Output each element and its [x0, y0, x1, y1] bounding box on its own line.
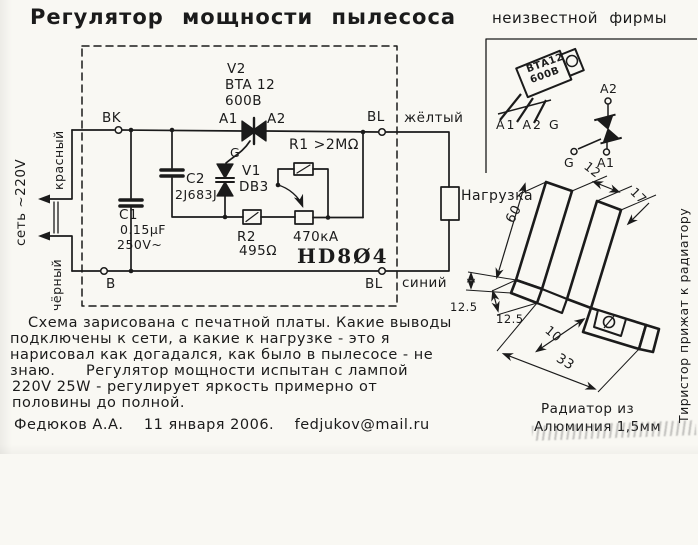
signature-line: Федюков А.А. 11 января 2006. fedjukov@ma… — [14, 418, 430, 434]
heatsink-drawing — [511, 182, 659, 352]
wiper-arrow — [278, 185, 303, 206]
terminal-bl-top — [379, 129, 386, 136]
heatsink-caption-1: Радиатор из — [541, 402, 634, 417]
dim-12-5-a: 12.5 — [450, 301, 478, 313]
note-line-1: Схема зарисована с печатной платы. Какие… — [28, 316, 452, 332]
package-pins-label: A1 A2 G — [496, 118, 561, 132]
dim-12-5-b: 12.5 — [496, 313, 524, 325]
terminal-bk-label: BK — [102, 111, 121, 126]
v1-designator: V1 — [242, 164, 261, 179]
mount-note-line1: Тиристор прижат к радиатору — [677, 93, 691, 423]
c1-value: 0.15μF — [120, 223, 166, 237]
scanned-schematic-page: { "title": "Регулятор мощности пылесоса"… — [0, 0, 698, 454]
terminal-bl-top-label: BL — [367, 110, 385, 125]
r1-label: R1 >2МΩ — [289, 138, 359, 153]
wire-red-label: красный — [52, 130, 66, 190]
v2-voltage: 600В — [225, 94, 262, 109]
pinout-g-label: G — [564, 156, 574, 170]
note-line-3: нарисовал как догадался, как было в пыле… — [10, 348, 433, 364]
board-marking: HD8Ø4 — [297, 246, 389, 268]
triac-v2-symbol — [242, 118, 266, 144]
terminal-bl-bottom-label: BL — [365, 277, 383, 292]
page-title: Регулятор мощности пылесоса — [30, 6, 456, 29]
potentiometer-symbol — [295, 211, 313, 224]
v2-type: BTA 12 — [225, 78, 275, 93]
diac-v1-symbol — [216, 164, 234, 196]
c2-value: 2J683J — [175, 188, 217, 202]
note-line-4: знаю. Регулятор мощности испытан с лампо… — [10, 364, 408, 380]
terminal-bl-bottom — [379, 268, 386, 275]
c2-designator: C2 — [186, 172, 205, 187]
note-line-6: половины до полной. — [12, 396, 185, 412]
r2-value: 495Ω — [239, 244, 277, 259]
terminal-b-label: B — [106, 277, 116, 292]
resistor-r1-symbol — [294, 163, 313, 175]
wire-black-label: чёрный — [50, 259, 64, 311]
c1-designator: C1 — [119, 208, 138, 223]
load-label: Нагрузка — [461, 189, 533, 204]
c1-voltage: 250V~ — [117, 238, 162, 252]
wire-yellow-label: жёлтый — [404, 111, 463, 126]
resistor-r2-symbol — [243, 210, 261, 224]
triac-g-label: G — [230, 146, 240, 160]
pinout-a2-label: A2 — [600, 82, 618, 96]
note-line-2: подключены к сети, а какие к нагрузке - … — [10, 332, 390, 348]
terminal-b — [101, 268, 108, 275]
note-line-5: 220V 25W - регулирует яркость примерно о… — [12, 380, 377, 396]
v1-type: DB3 — [239, 180, 269, 195]
wire-blue-label: синий — [402, 276, 447, 291]
load-resistor — [441, 187, 459, 220]
pot-value: 470кА — [293, 230, 339, 245]
triac-a1-label: A1 — [219, 112, 238, 127]
v2-designator: V2 — [227, 62, 246, 77]
pinout-symbol — [571, 98, 622, 155]
brand-note: неизвестной фирмы — [492, 10, 667, 26]
terminal-bk — [115, 127, 122, 134]
mains-label: сеть ~220V — [14, 159, 29, 246]
triac-a2-label: A2 — [267, 112, 286, 127]
